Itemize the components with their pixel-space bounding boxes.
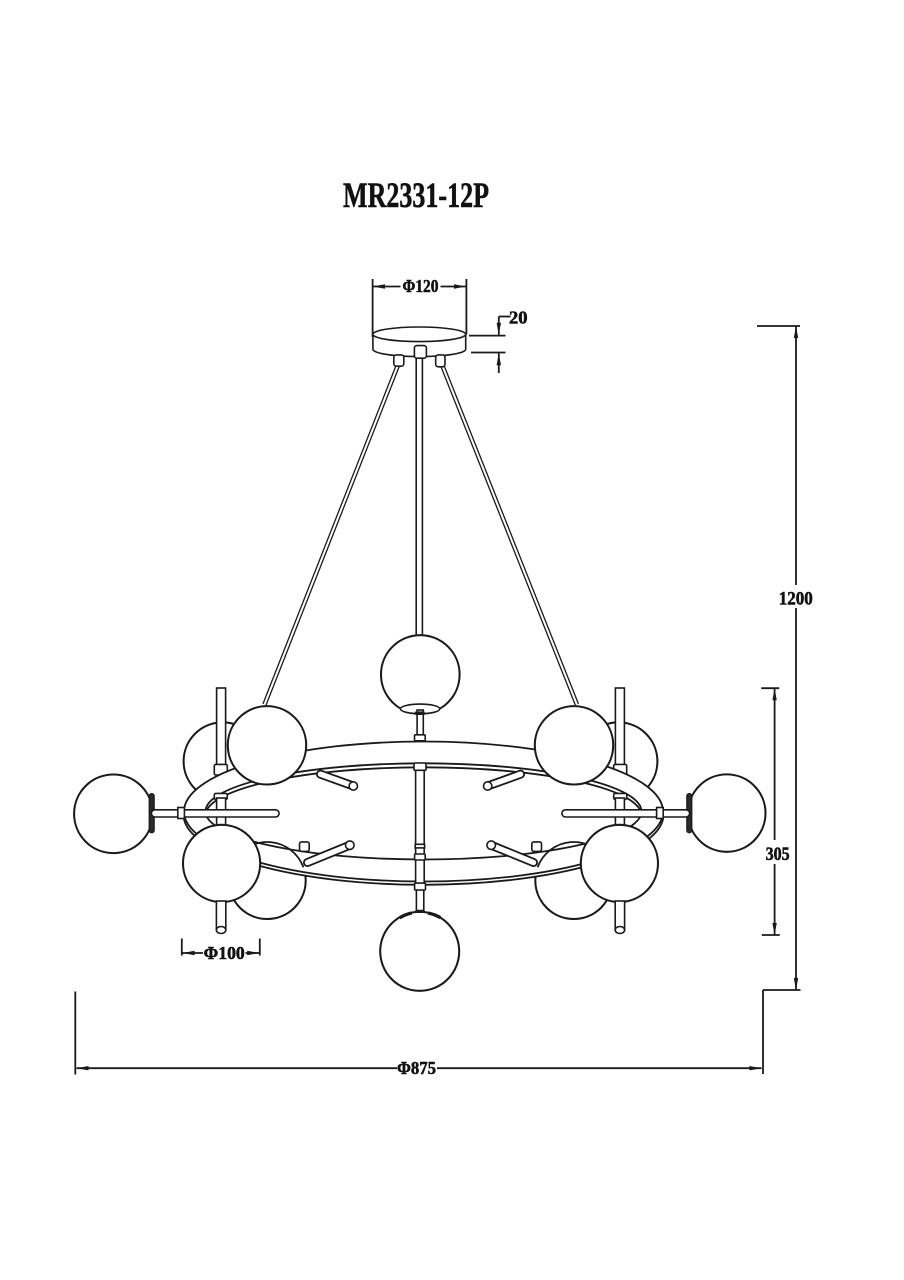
- svg-text:MR2331-12P: MR2331-12P: [343, 175, 489, 215]
- svg-text:Φ100: Φ100: [204, 943, 245, 963]
- svg-text:20: 20: [509, 308, 528, 328]
- svg-text:Φ875: Φ875: [397, 1058, 436, 1078]
- svg-text:305: 305: [766, 845, 790, 865]
- svg-text:Φ120: Φ120: [403, 276, 439, 296]
- svg-text:1200: 1200: [779, 590, 813, 610]
